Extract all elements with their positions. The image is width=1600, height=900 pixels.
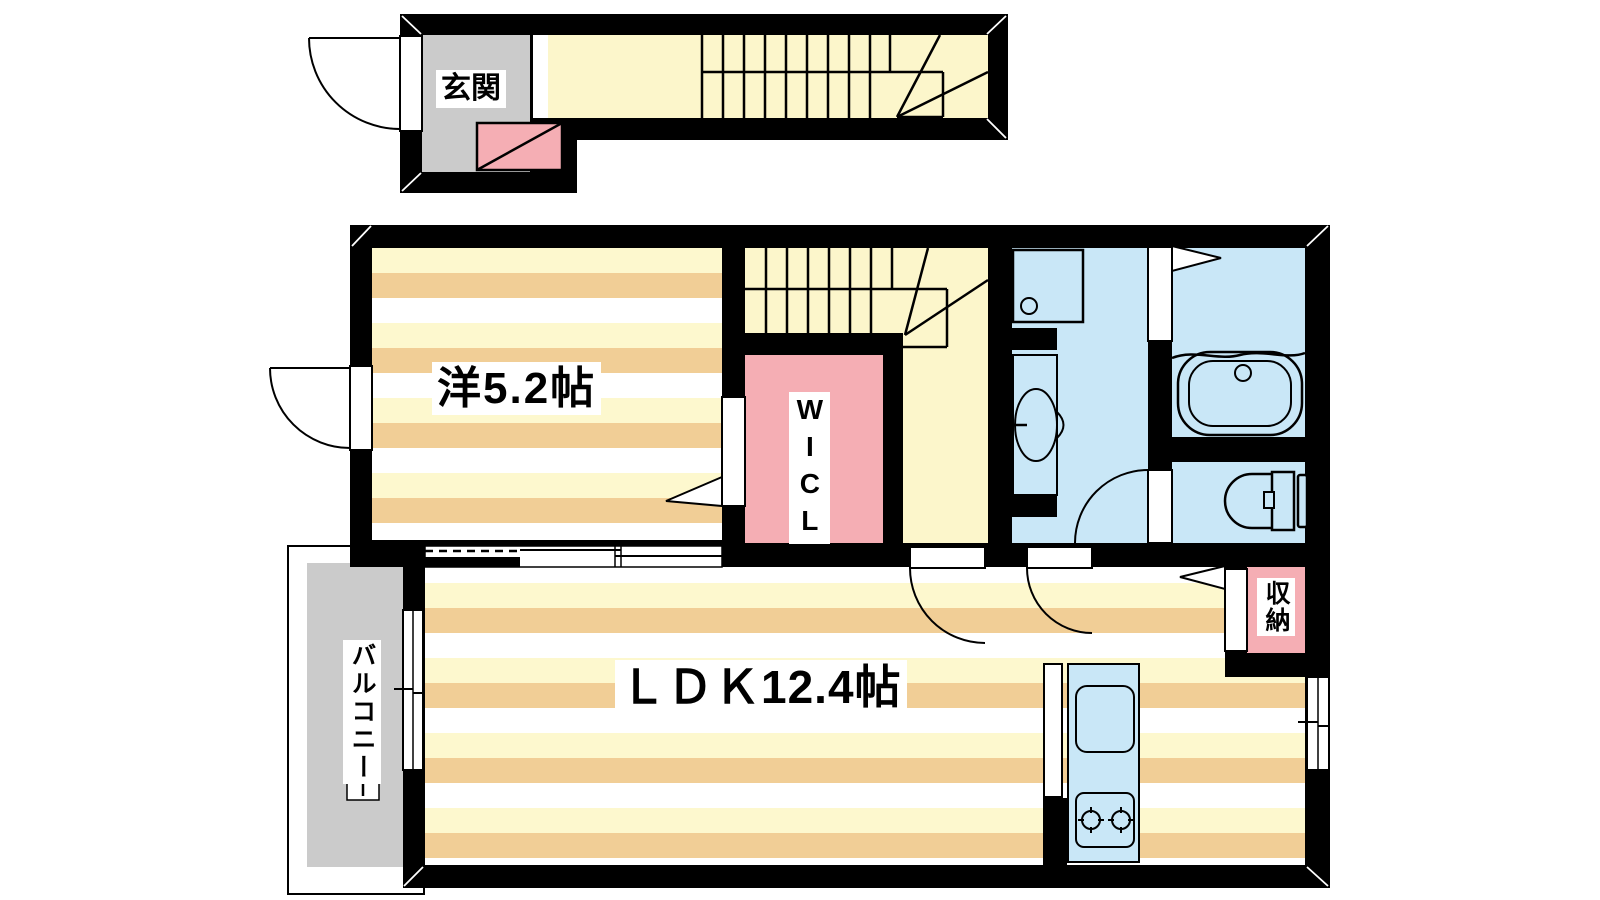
bedroom-sliding-door bbox=[425, 546, 722, 567]
washroom-door bbox=[1027, 547, 1092, 633]
entrance-door bbox=[309, 36, 422, 131]
bathroom-folding-door bbox=[1148, 246, 1221, 341]
storage-door bbox=[1180, 566, 1247, 651]
shoe-cabinet bbox=[477, 123, 562, 170]
bedroom-window bbox=[270, 366, 372, 450]
toilet-bowl bbox=[1225, 472, 1307, 530]
ldk-window bbox=[1298, 677, 1329, 770]
floor-plan: 玄関 洋5.2帖 WICL ＬＤＫ12.4帖 バルコニー 収納 bbox=[0, 0, 1600, 900]
wicl-door bbox=[666, 397, 745, 506]
balcony-window bbox=[394, 610, 423, 770]
staircase-1f bbox=[702, 35, 988, 118]
bathtub bbox=[1172, 352, 1305, 435]
gas-stove bbox=[1076, 793, 1134, 847]
wicl-label: WICL bbox=[789, 392, 830, 544]
entry-label: 玄関 bbox=[436, 70, 506, 108]
hall-ldk-door bbox=[910, 547, 985, 643]
kitchen-sink bbox=[1076, 686, 1134, 752]
storage-label: 収納 bbox=[1257, 578, 1295, 636]
staircase-2f bbox=[745, 248, 988, 347]
balcony-label: バルコニー bbox=[343, 640, 381, 784]
washing-machine-pan bbox=[1013, 250, 1083, 322]
toilet-door bbox=[1075, 470, 1172, 543]
vanity-basin bbox=[1013, 355, 1064, 495]
bedroom-label: 洋5.2帖 bbox=[432, 362, 601, 415]
ldk-label: ＬＤＫ12.4帖 bbox=[615, 660, 907, 716]
